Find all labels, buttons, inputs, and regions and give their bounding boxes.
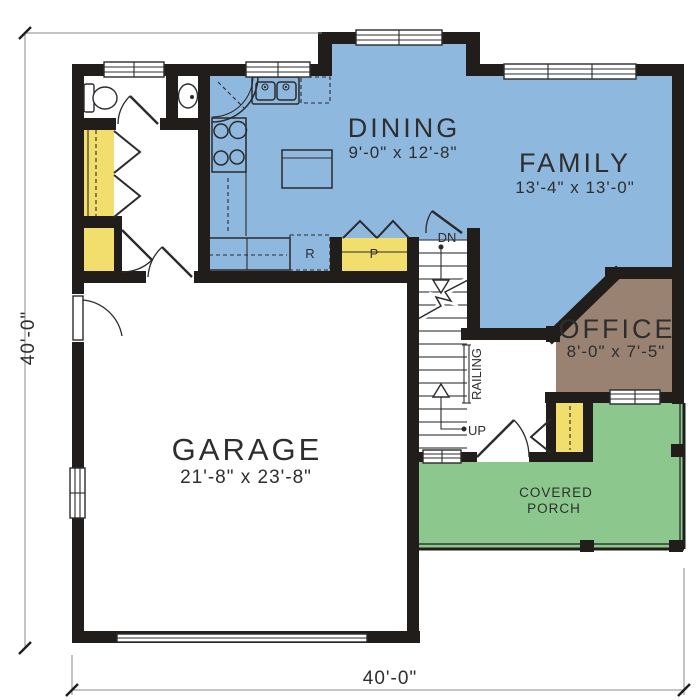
hall-window (423, 450, 461, 463)
porch-post (580, 540, 594, 552)
family-label: FAMILY (519, 148, 631, 178)
porch-label-line1: COVERED (519, 485, 593, 500)
bath-window (104, 62, 164, 77)
dining-dims: 9'-0" x 12'-8" (348, 143, 457, 162)
kitchen-window (246, 62, 310, 77)
porch-post (671, 444, 684, 457)
garage-dims: 21'-8" x 23'-8" (180, 467, 312, 488)
garage-side-door (73, 296, 122, 340)
office-dims: 8'-0" x 7'-5" (567, 342, 666, 361)
floor-plan-page: DINING 9'-0" x 12'-8" FAMILY 13'-4" x 13… (0, 0, 700, 700)
staircase (416, 240, 471, 448)
dining-label: DINING (348, 113, 461, 143)
garage-window (70, 468, 85, 518)
refrigerator-label: R (305, 246, 314, 261)
railing-label: RAILING (469, 348, 484, 400)
office-window (610, 390, 660, 404)
toilet (84, 84, 117, 112)
pedestal-sink (179, 84, 198, 108)
bottom-dimension: 40'-0" (363, 668, 417, 689)
down-arrow (433, 245, 449, 294)
pantry-label: P (370, 246, 379, 261)
porch-post (669, 540, 683, 552)
garage-label: GARAGE (172, 432, 323, 467)
floor-plan-image: DINING 9'-0" x 12'-8" FAMILY 13'-4" x 13… (0, 0, 700, 700)
up-arrow (433, 384, 467, 432)
closet-b-door (122, 230, 152, 272)
up-label: UP (468, 423, 486, 438)
dining-window (356, 30, 442, 45)
office-label: OFFICE (559, 314, 676, 344)
garage-vehicle-door (117, 634, 367, 642)
down-label: DN (438, 230, 457, 245)
left-dimension: 40'-0" (18, 311, 39, 365)
closet-a-bifold-doors (114, 131, 140, 217)
family-window (504, 64, 636, 79)
family-dims: 13'-4" x 13'-0" (515, 178, 635, 197)
porch-label-line2: PORCH (527, 501, 581, 516)
